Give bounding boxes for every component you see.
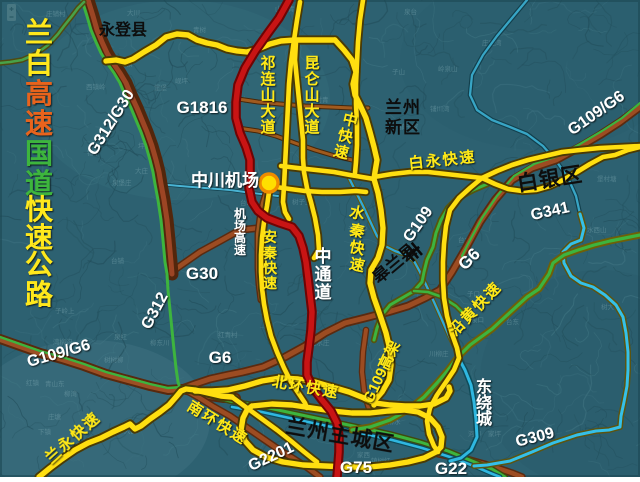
svg-text:G22: G22 [435, 459, 467, 477]
svg-text:速: 速 [332, 142, 351, 163]
svg-text:秦: 秦 [262, 245, 278, 261]
svg-text:新区: 新区 [385, 117, 421, 137]
svg-text:G312: G312 [138, 290, 171, 333]
svg-text:城: 城 [476, 410, 492, 428]
svg-text:G109高架: G109高架 [359, 338, 404, 406]
svg-text:G6: G6 [454, 244, 483, 273]
svg-text:通: 通 [315, 265, 332, 284]
svg-text:G341: G341 [529, 199, 571, 224]
svg-text:白银区: 白银区 [515, 162, 584, 196]
svg-text:G109: G109 [400, 203, 436, 245]
svg-text:G6: G6 [209, 348, 232, 367]
svg-text:东: 东 [476, 377, 492, 396]
svg-text:中川机场: 中川机场 [191, 170, 259, 190]
svg-text:兰: 兰 [25, 17, 53, 48]
svg-text:路: 路 [25, 279, 54, 310]
svg-text:大: 大 [260, 102, 275, 120]
svg-text:大: 大 [304, 102, 319, 120]
svg-text:山: 山 [260, 87, 275, 104]
svg-text:兰州主城区: 兰州主城区 [284, 414, 396, 457]
svg-text:G312/G30: G312/G30 [84, 87, 138, 159]
svg-text:中: 中 [315, 246, 332, 266]
svg-text:公: 公 [25, 249, 53, 280]
svg-text:快: 快 [25, 194, 54, 225]
svg-text:国: 国 [25, 138, 53, 169]
svg-text:G1816: G1816 [176, 98, 227, 117]
svg-text:高: 高 [25, 78, 53, 109]
svg-text:昆: 昆 [304, 55, 319, 72]
svg-text:连: 连 [260, 70, 276, 88]
svg-text:快: 快 [263, 260, 278, 276]
svg-text:速: 速 [263, 275, 277, 291]
svg-text:北环快速: 北环快速 [271, 372, 341, 402]
svg-text:G30: G30 [186, 264, 218, 283]
svg-text:速: 速 [25, 108, 53, 139]
svg-text:南环快速: 南环快速 [184, 397, 251, 448]
svg-text:绕: 绕 [476, 393, 492, 412]
svg-text:兰州: 兰州 [385, 97, 421, 117]
svg-text:G75: G75 [340, 458, 372, 477]
svg-text:祁: 祁 [260, 54, 275, 72]
svg-text:安: 安 [263, 229, 277, 245]
svg-text:兰永快速: 兰永快速 [41, 408, 104, 467]
svg-text:道: 道 [315, 282, 332, 302]
svg-text:道: 道 [260, 118, 275, 136]
svg-text:G109/G6: G109/G6 [25, 337, 92, 371]
svg-text:白: 白 [25, 47, 53, 79]
svg-text:G309: G309 [514, 425, 556, 451]
svg-text:G109/G6: G109/G6 [565, 88, 628, 139]
svg-text:白永快速: 白永快速 [408, 148, 478, 173]
svg-text:速: 速 [348, 255, 366, 276]
svg-text:仑: 仑 [304, 70, 320, 88]
svg-text:皋兰县: 皋兰县 [368, 239, 420, 287]
svg-text:G2201: G2201 [246, 439, 297, 475]
svg-text:速: 速 [234, 242, 246, 257]
svg-text:永登县: 永登县 [98, 20, 147, 39]
svg-text:水: 水 [348, 203, 367, 224]
svg-text:秦: 秦 [347, 221, 367, 242]
svg-text:道: 道 [304, 118, 319, 136]
svg-text:沿黄快速: 沿黄快速 [445, 278, 505, 339]
svg-text:山: 山 [304, 87, 319, 104]
